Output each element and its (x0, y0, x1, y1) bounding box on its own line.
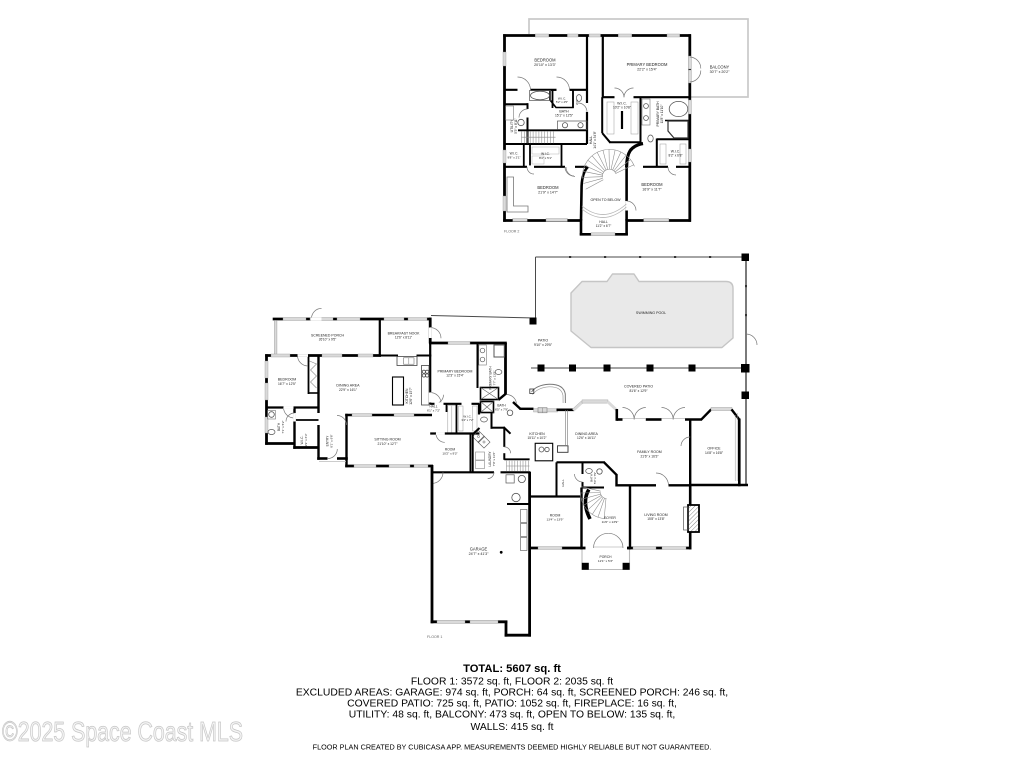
svg-text:5'2" x 4'5": 5'2" x 4'5" (556, 100, 568, 104)
svg-text:SWIMMING POOL: SWIMMING POOL (636, 311, 666, 315)
svg-text:FLOOR PLAN CREATED BY CUBICASA: FLOOR PLAN CREATED BY CUBICASA APP. MEAS… (313, 743, 712, 752)
svg-text:BEDROOM: BEDROOM (534, 58, 556, 63)
svg-text:5'0" x 7'9": 5'0" x 7'9" (593, 472, 597, 484)
svg-text:8'1" x 9'8": 8'1" x 9'8" (329, 434, 333, 447)
svg-text:81'6" x 12'9": 81'6" x 12'9" (629, 389, 648, 393)
svg-text:TOTAL: 5607 sq. ft: TOTAL: 5607 sq. ft (463, 663, 561, 675)
svg-text:7'7" x 13'5": 7'7" x 13'5" (492, 371, 496, 386)
svg-text:14'1" x 34'8": 14'1" x 34'8" (593, 131, 597, 148)
svg-text:10'2" x 9'3": 10'2" x 9'3" (442, 452, 457, 456)
svg-text:12'1" x 5'3": 12'1" x 5'3" (598, 559, 613, 563)
svg-text:24'7" x 41'3": 24'7" x 41'3" (469, 552, 489, 556)
svg-text:11'6" x 13'9": 11'6" x 13'9" (602, 520, 619, 524)
svg-text:21'6" x 16'3": 21'6" x 16'3" (640, 454, 659, 458)
svg-text:12'3" x 15'4": 12'3" x 15'4" (446, 374, 463, 378)
svg-text:HALL: HALL (561, 479, 565, 487)
svg-text:21'10" x 12'7": 21'10" x 12'7" (378, 442, 399, 446)
svg-text:20'10" x 13'3": 20'10" x 13'3" (534, 63, 556, 67)
svg-text:BALCONY: BALCONY (710, 65, 730, 70)
svg-text:16'7" x 12'5": 16'7" x 12'5" (278, 382, 297, 386)
svg-text:15'1" x 12'5": 15'1" x 12'5" (555, 114, 574, 118)
svg-text:26'10" x 9'5": 26'10" x 9'5" (319, 338, 336, 342)
svg-text:16'9" x 11'7": 16'9" x 11'7" (642, 188, 662, 192)
svg-text:13'4" x 13'9": 13'4" x 13'9" (547, 518, 564, 522)
svg-text:14'8" x 16'8": 14'8" x 16'8" (705, 451, 724, 455)
svg-text:BEDROOM: BEDROOM (641, 182, 663, 187)
svg-text:12'6" x 15'7": 12'6" x 15'7" (409, 387, 413, 404)
svg-text:12'6" x 8'11": 12'6" x 8'11" (395, 336, 412, 340)
svg-text:FLOOR 1: 3572 sq. ft, FLOOR 2:: FLOOR 1: 3572 sq. ft, FLOOR 2: 2035 sq. … (411, 676, 613, 687)
svg-text:COVERED PATIO: 725 sq. ft, PAT: COVERED PATIO: 725 sq. ft, PATIO: 1052 s… (347, 698, 677, 709)
svg-text:21'9" x 14'7": 21'9" x 14'7" (538, 191, 558, 195)
svg-text:W.C.: W.C. (575, 99, 579, 105)
svg-text:7'1" x 5'2": 7'1" x 5'2" (281, 420, 285, 433)
svg-text:3'9" x 6'3": 3'9" x 6'3" (304, 433, 308, 446)
svg-text:9'8" x 2'1": 9'8" x 2'1" (507, 155, 520, 159)
svg-text:COVERED PATIO: COVERED PATIO (624, 385, 653, 389)
svg-text:10'2" x 10'8": 10'2" x 10'8" (613, 106, 632, 110)
svg-text:9'10" x 29'5": 9'10" x 29'5" (534, 343, 553, 347)
svg-text:7'9" x 11'6": 7'9" x 11'6" (492, 452, 496, 467)
svg-text:FLOOR 1: FLOOR 1 (427, 635, 442, 639)
svg-text:UTILITY: 48 sq. ft, BALCONY: 4: UTILITY: 48 sq. ft, BALCONY: 473 sq. ft,… (349, 710, 676, 721)
svg-text:15'8" x 13'8": 15'8" x 13'8" (647, 517, 664, 521)
svg-text:GARAGE: GARAGE (470, 547, 488, 552)
svg-text:EXCLUDED AREAS: GARAGE: 974 sq: EXCLUDED AREAS: GARAGE: 974 sq. ft, PORC… (296, 687, 728, 698)
svg-text:©2025 Space Coast MLS: ©2025 Space Coast MLS (2, 716, 243, 747)
svg-text:6'1" x 7'2": 6'1" x 7'2" (427, 408, 440, 412)
svg-text:6'5" x 7'9": 6'5" x 7'9" (495, 407, 508, 411)
svg-text:FLOOR 2: FLOOR 2 (504, 230, 519, 234)
svg-text:30'7" x 20'2": 30'7" x 20'2" (710, 70, 730, 74)
svg-text:PATIO: PATIO (538, 339, 548, 343)
svg-text:11'8" x 11'10": 11'8" x 11'10" (660, 105, 664, 124)
svg-text:8'2" x 6'8": 8'2" x 6'8" (669, 154, 683, 158)
svg-text:PRIMARY BEDROOM: PRIMARY BEDROOM (627, 62, 668, 67)
svg-text:22'2" x 15'4": 22'2" x 15'4" (637, 68, 657, 72)
svg-text:5'5" x 8'11": 5'5" x 8'11" (514, 118, 518, 133)
svg-text:WALLS: 415 sq. ft: WALLS: 415 sq. ft (471, 722, 554, 733)
svg-text:BEDROOM: BEDROOM (537, 185, 559, 190)
svg-text:12'6" x 16'11": 12'6" x 16'11" (577, 436, 596, 440)
svg-text:3'4" x 7'2": 3'4" x 7'2" (461, 418, 473, 422)
svg-text:15'11" x 10'2": 15'11" x 10'2" (527, 436, 546, 440)
svg-text:8'4" x 5'1": 8'4" x 5'1" (539, 156, 552, 160)
svg-text:11'2" x 6'7": 11'2" x 6'7" (596, 224, 611, 228)
svg-text:22'9" x 16'1": 22'9" x 16'1" (339, 388, 358, 392)
svg-text:OPEN TO BELOW: OPEN TO BELOW (590, 198, 621, 202)
